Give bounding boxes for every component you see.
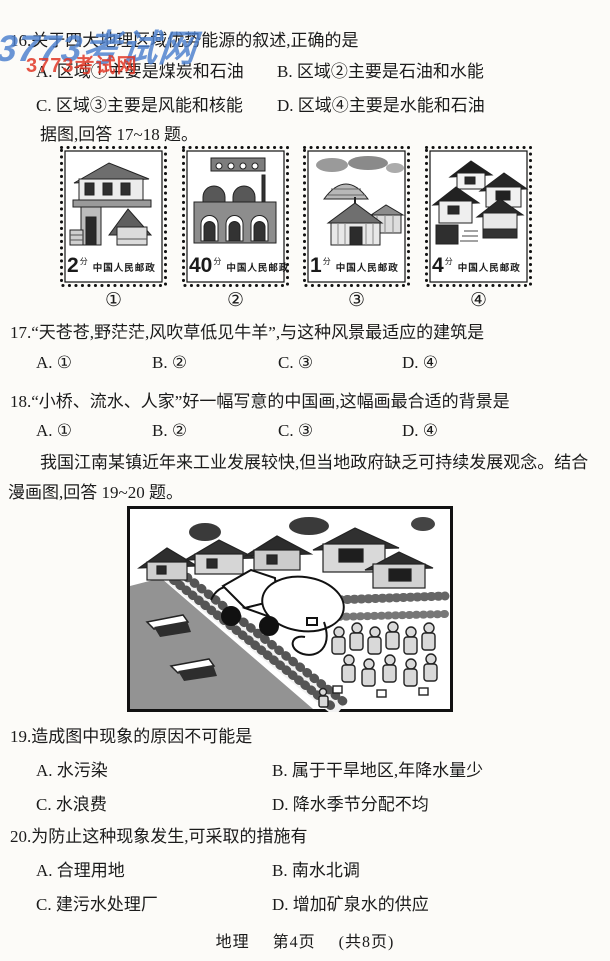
stamp-4: 4 分 中国人民邮政 bbox=[424, 145, 533, 288]
water-pollution-cartoon bbox=[127, 506, 453, 712]
stamp-4-text: 4 分 中国人民邮政 bbox=[432, 252, 525, 276]
cartoon-illustration bbox=[127, 506, 453, 712]
q19-option-a: A. 水污染 bbox=[36, 756, 108, 781]
stamp-inscription: 中国人民邮政 bbox=[93, 260, 156, 274]
stamp-4-caption: ④ bbox=[424, 289, 533, 312]
q17-option-a: A. ① bbox=[36, 353, 72, 373]
stamp-1: 2 分 中国人民邮政 bbox=[59, 145, 168, 288]
q16-option-c: C. 区域③主要是风能和核能 bbox=[36, 91, 243, 116]
q18-option-d: D. ④ bbox=[402, 421, 438, 441]
stamp-3: 1 分 中国人民邮政 bbox=[302, 145, 411, 288]
stamp-unit: 分 bbox=[80, 258, 88, 266]
q20-option-c: C. 建污水处理厂 bbox=[36, 890, 158, 915]
stamp-1-caption: ① bbox=[59, 289, 168, 312]
question-16-stem: 16.关于四大地理区域优势能源的叙述,正确的是 bbox=[10, 26, 359, 51]
q18-option-a: A. ① bbox=[36, 421, 72, 441]
stamp-inscription: 中国人民邮政 bbox=[226, 260, 289, 274]
stamp-unit: 分 bbox=[323, 258, 331, 266]
q16-option-a: A. 区域①主要是煤炭和石油 bbox=[36, 57, 244, 82]
footer-page-number: 第4页 bbox=[273, 934, 316, 951]
stamp-2: 40 分 中国人民邮政 bbox=[181, 145, 290, 288]
stamp-unit: 分 bbox=[213, 258, 221, 266]
stamps-instruction: 据图,回答 17~18 题。 bbox=[40, 120, 198, 145]
footer-subject: 地理 bbox=[216, 934, 250, 951]
q19-option-d: D. 降水季节分配不均 bbox=[272, 790, 429, 815]
stamp-value: 2 bbox=[67, 255, 79, 276]
stamp-inscription: 中国人民邮政 bbox=[336, 260, 399, 274]
stamp-value: 4 bbox=[432, 255, 444, 276]
stamp-inscription: 中国人民邮政 bbox=[458, 260, 521, 274]
stamp-3-text: 1 分 中国人民邮政 bbox=[310, 252, 403, 276]
question-20-stem: 20.为防止这种现象发生,可采取的措施有 bbox=[10, 822, 308, 847]
q19-option-b: B. 属于干旱地区,年降水量少 bbox=[272, 756, 483, 781]
stamp-1-text: 2 分 中国人民邮政 bbox=[67, 252, 160, 276]
passage-19-20: 我国江南某镇近年来工业发展较快,但当地政府缺乏可持续发展观念。结合漫画图,回答 … bbox=[8, 448, 604, 508]
footer-total-pages: (共8页) bbox=[339, 934, 395, 951]
q18-option-c: C. ③ bbox=[278, 421, 313, 441]
stamp-value: 1 bbox=[310, 255, 322, 276]
question-18-stem: 18.“小桥、流水、人家”好一幅写意的中国画,这幅画最合适的背景是 bbox=[10, 387, 510, 412]
q17-option-c: C. ③ bbox=[278, 353, 313, 373]
q18-option-b: B. ② bbox=[152, 421, 187, 441]
stamp-3-caption: ③ bbox=[302, 289, 411, 312]
q16-option-b: B. 区域②主要是石油和水能 bbox=[277, 57, 484, 82]
q20-option-a: A. 合理用地 bbox=[36, 856, 125, 881]
stamp-2-caption: ② bbox=[181, 289, 290, 312]
q16-option-d: D. 区域④主要是水能和石油 bbox=[277, 91, 485, 116]
stamp-2-text: 40 分 中国人民邮政 bbox=[189, 252, 282, 276]
page-footer: 地理 第4页 (共8页) bbox=[0, 928, 610, 952]
q17-option-d: D. ④ bbox=[402, 353, 438, 373]
q17-option-b: B. ② bbox=[152, 353, 187, 373]
stamp-unit: 分 bbox=[445, 258, 453, 266]
question-19-stem: 19.造成图中现象的原因不可能是 bbox=[10, 722, 252, 747]
q20-option-d: D. 增加矿泉水的供应 bbox=[272, 890, 429, 915]
q19-option-c: C. 水浪费 bbox=[36, 790, 107, 815]
q20-option-b: B. 南水北调 bbox=[272, 856, 360, 881]
question-17-stem: 17.“天苍苍,野茫茫,风吹草低见牛羊”,与这种风景最适应的建筑是 bbox=[10, 318, 484, 343]
stamp-value: 40 bbox=[189, 255, 212, 276]
exam-page: 3773考试网 3773考试网 16.关于四大地理区域优势能源的叙述,正确的是 … bbox=[0, 0, 610, 961]
